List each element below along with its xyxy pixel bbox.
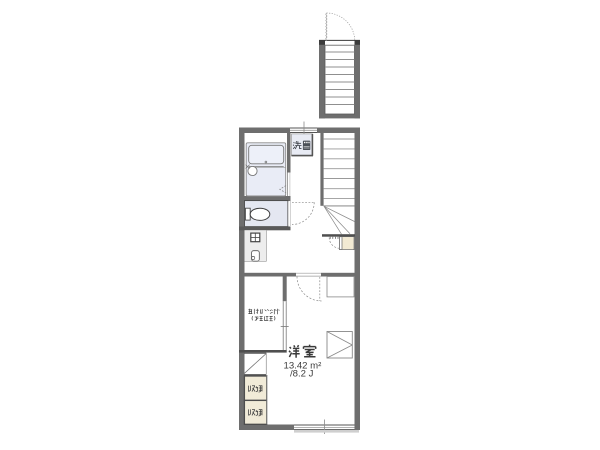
svg-text:/8.2 J: /8.2 J [290,368,314,379]
